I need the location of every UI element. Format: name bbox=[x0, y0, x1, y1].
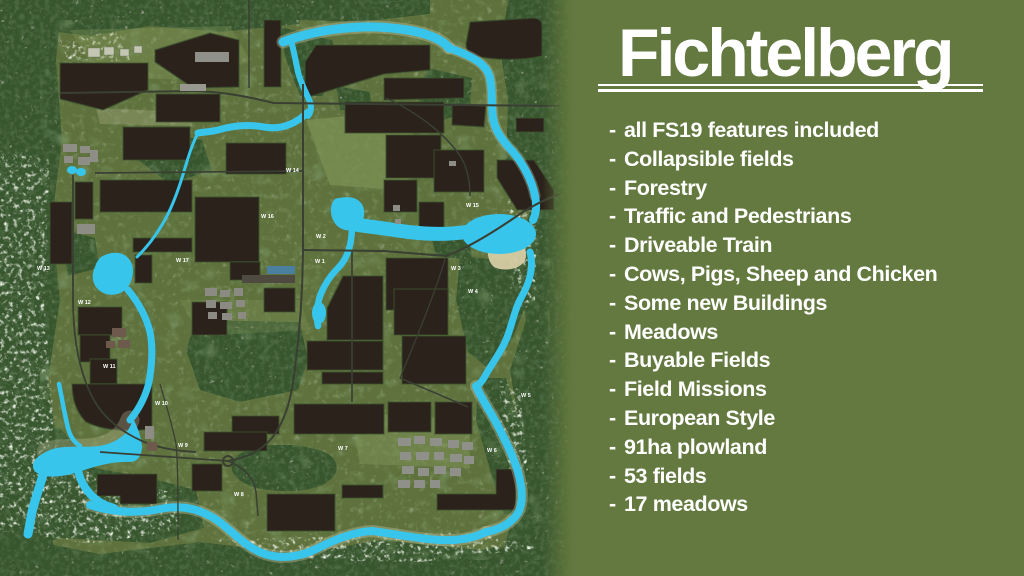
svg-text:W 9: W 9 bbox=[178, 443, 188, 449]
svg-text:W 4: W 4 bbox=[468, 289, 479, 295]
svg-text:W 5: W 5 bbox=[521, 393, 531, 399]
svg-text:W 15: W 15 bbox=[466, 203, 479, 209]
svg-text:W 8: W 8 bbox=[234, 492, 244, 498]
svg-text:W 2: W 2 bbox=[316, 234, 326, 240]
svg-text:W 17: W 17 bbox=[176, 258, 189, 264]
svg-text:W 14: W 14 bbox=[286, 168, 300, 174]
svg-text:W 3: W 3 bbox=[451, 266, 461, 272]
svg-text:W 6: W 6 bbox=[487, 448, 497, 454]
svg-text:W 1: W 1 bbox=[315, 259, 325, 265]
svg-text:W 16: W 16 bbox=[261, 214, 274, 220]
svg-text:W 12: W 12 bbox=[78, 300, 91, 306]
svg-text:W 13: W 13 bbox=[37, 266, 50, 272]
svg-text:W 11: W 11 bbox=[103, 364, 116, 370]
svg-text:W 7: W 7 bbox=[338, 446, 348, 452]
svg-text:W 10: W 10 bbox=[155, 401, 168, 407]
